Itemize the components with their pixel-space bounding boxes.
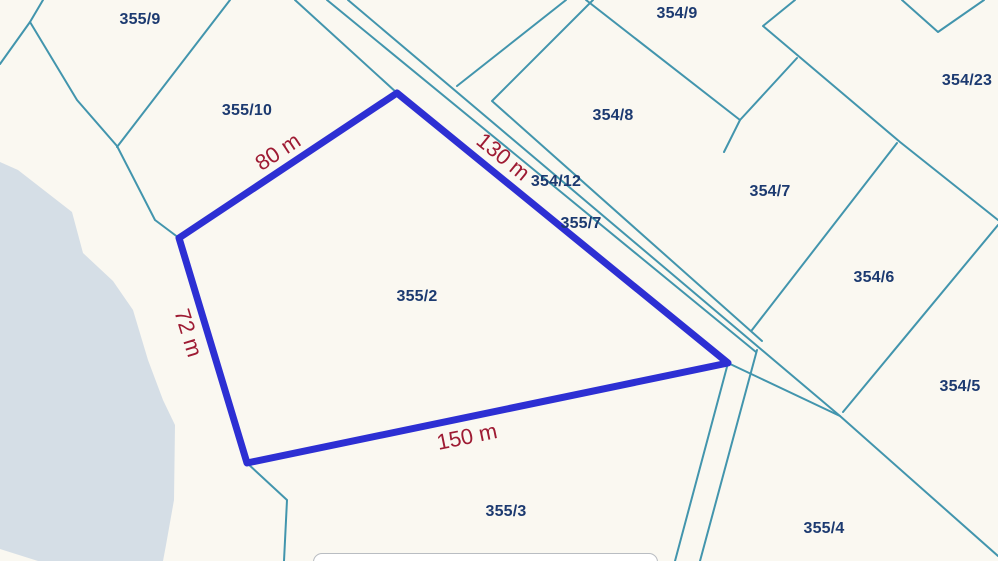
parcel-label-354-6: 354/6 — [853, 269, 894, 287]
boundary-line — [700, 350, 757, 561]
boundary-line — [740, 58, 797, 120]
parcel-label-355-9: 355/9 — [119, 11, 160, 29]
boundary-line — [752, 143, 897, 330]
parcel-label-354-9: 354/9 — [656, 5, 697, 23]
boundary-line — [763, 0, 998, 220]
parcel-label-354-7: 354/7 — [749, 183, 790, 201]
bottom-panel[interactable] — [313, 553, 658, 561]
parcel-label-354-5: 354/5 — [939, 378, 980, 396]
parcel-label-355-10: 355/10 — [222, 102, 272, 120]
parcel-label-355-3: 355/3 — [485, 503, 526, 521]
cadastral-map[interactable]: 355/9355/10354/9354/8354/12355/7354/7354… — [0, 0, 998, 561]
boundary-line — [675, 363, 728, 561]
parcel-label-354-23: 354/23 — [942, 72, 992, 90]
boundary-line — [728, 363, 840, 416]
boundary-line — [492, 0, 762, 341]
parcel-label-355-7: 355/7 — [560, 215, 601, 233]
boundary-line — [247, 463, 287, 561]
parcel-label-354-8: 354/8 — [592, 107, 633, 125]
boundary-line — [295, 0, 397, 93]
map-canvas — [0, 0, 998, 561]
parcel-label-355-4: 355/4 — [803, 520, 844, 538]
parcel-label-355-2: 355/2 — [396, 288, 437, 306]
parcel-label-354-12: 354/12 — [531, 173, 581, 191]
boundary-line — [902, 0, 984, 32]
water-body — [0, 162, 175, 561]
boundary-line — [348, 0, 998, 556]
